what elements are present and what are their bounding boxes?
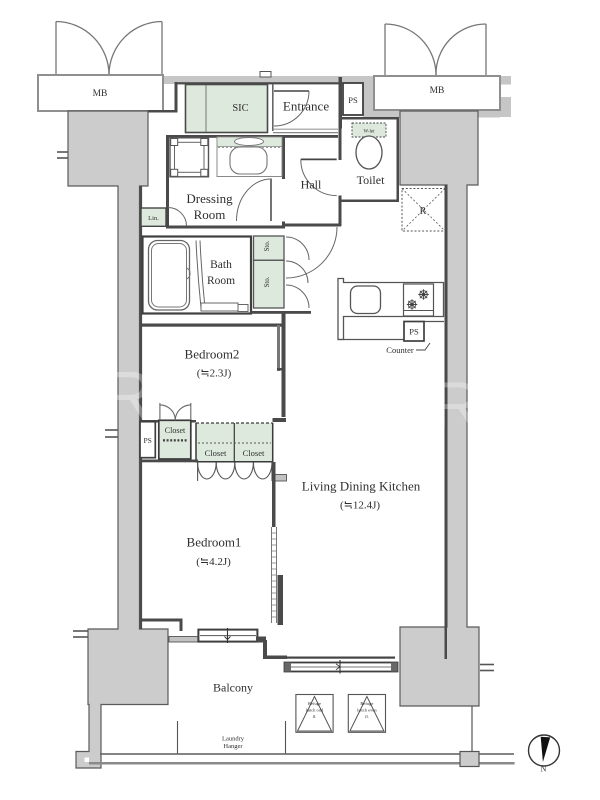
svg-text:Bath: Bath [210,259,232,271]
svg-text:Dressing: Dressing [186,191,233,206]
svg-text:R: R [103,357,154,435]
svg-text:(≒12.4J): (≒12.4J) [340,500,380,512]
svg-text:R: R [433,368,481,442]
svg-text:Lin.: Lin. [148,215,159,222]
svg-text:N: N [541,765,547,774]
svg-text:(≒2.3J): (≒2.3J) [197,368,232,380]
svg-text:Closet: Closet [205,448,227,458]
svg-text:fl.: fl. [365,714,369,719]
svg-text:Hall: Hall [301,178,322,192]
svg-text:Toilet: Toilet [357,173,385,187]
svg-text:Room: Room [194,207,226,222]
svg-text:Hanger: Hanger [223,743,243,750]
svg-text:Room: Room [207,275,235,287]
svg-text:hatch even: hatch even [357,708,377,713]
svg-text:R: R [420,206,427,217]
svg-text:PS: PS [409,327,419,337]
svg-text:Bedroom1: Bedroom1 [187,535,242,550]
svg-text:PS: PS [144,436,152,445]
svg-text:hatch odd: hatch odd [306,708,324,713]
svg-text:MB: MB [430,86,445,96]
svg-text:Refuge: Refuge [308,701,321,706]
svg-text:Counter: Counter [386,345,414,355]
svg-text:Living Dining Kitchen: Living Dining Kitchen [302,479,421,494]
svg-text:Closet: Closet [243,448,265,458]
svg-text:SIC: SIC [232,103,248,114]
svg-text:Refuge: Refuge [360,701,373,706]
svg-text:(≒4.2J): (≒4.2J) [196,556,231,568]
svg-text:Sto.: Sto. [263,276,271,287]
svg-text:Sto.: Sto. [263,240,271,251]
svg-text:Balcony: Balcony [213,681,253,695]
svg-text:fl.: fl. [313,714,317,719]
svg-text:W-let: W-let [363,130,375,135]
svg-text:Laundry: Laundry [222,736,245,743]
svg-text:Bedroom2: Bedroom2 [185,347,240,362]
svg-text:MB: MB [93,89,108,99]
svg-text:Closet: Closet [165,426,186,435]
svg-text:PS: PS [348,95,358,105]
